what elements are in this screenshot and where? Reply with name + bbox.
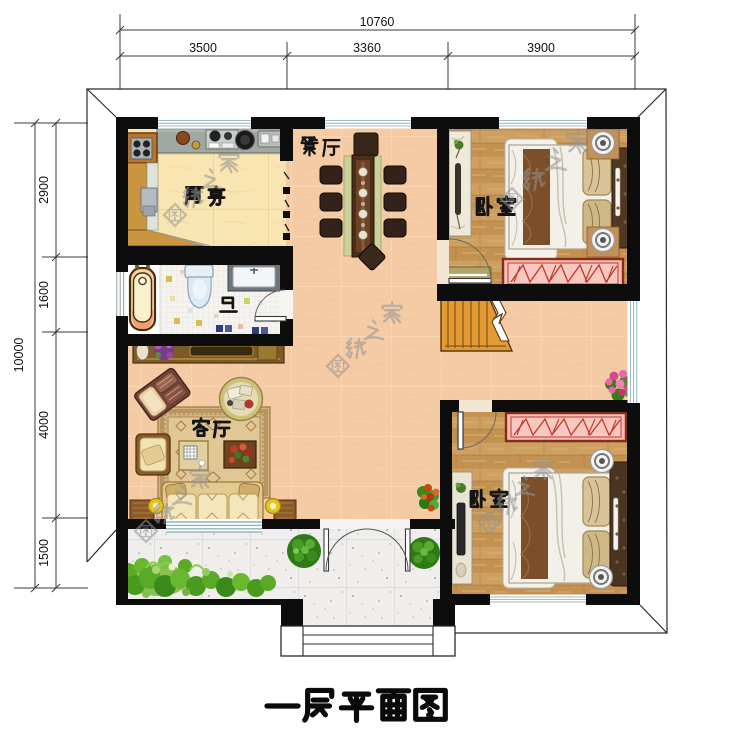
svg-text:1600: 1600 <box>37 281 51 309</box>
svg-text:4000: 4000 <box>37 411 51 439</box>
svg-text:3360: 3360 <box>353 41 381 55</box>
svg-text:2900: 2900 <box>37 176 51 204</box>
svg-text:10000: 10000 <box>12 338 26 373</box>
svg-text:3900: 3900 <box>527 41 555 55</box>
svg-text:3500: 3500 <box>189 41 217 55</box>
svg-text:10760: 10760 <box>360 15 395 29</box>
svg-text:1500: 1500 <box>37 539 51 567</box>
